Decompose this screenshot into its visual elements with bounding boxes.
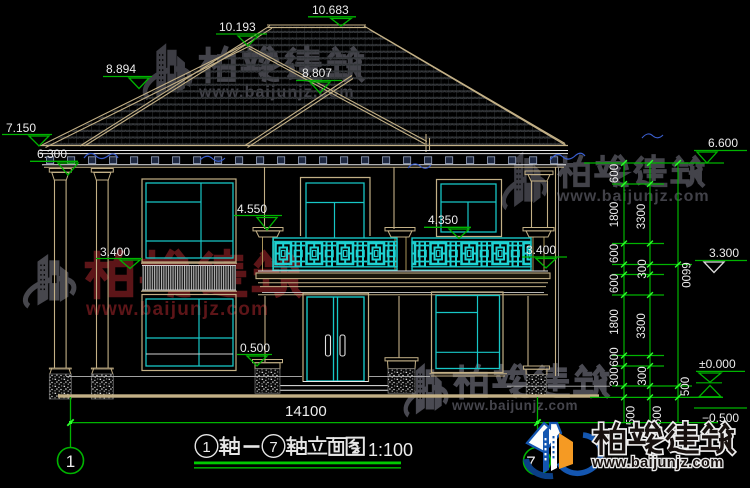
svg-text:1800: 1800	[609, 309, 621, 335]
svg-text:±0.000: ±0.000	[699, 357, 736, 371]
svg-text:600: 600	[609, 244, 621, 263]
svg-text:300: 300	[637, 259, 649, 278]
svg-text:6600: 6600	[679, 262, 691, 288]
svg-text:8.894: 8.894	[106, 62, 136, 76]
svg-text:3300: 3300	[636, 313, 648, 339]
svg-text:500: 500	[680, 377, 692, 396]
svg-text:3300: 3300	[636, 204, 648, 230]
svg-text:6.600: 6.600	[708, 136, 738, 150]
svg-text:www.baijunjz.com: www.baijunjz.com	[85, 299, 269, 320]
svg-text:1: 1	[66, 452, 75, 471]
svg-text:1:100: 1:100	[368, 440, 413, 460]
svg-text:3.300: 3.300	[709, 246, 739, 260]
svg-text:10.683: 10.683	[312, 3, 349, 17]
svg-text:www.baijunjz.com: www.baijunjz.com	[556, 188, 710, 205]
svg-text:4.350: 4.350	[428, 213, 458, 227]
svg-text:1800: 1800	[609, 202, 621, 228]
svg-text:7: 7	[269, 439, 277, 456]
svg-text:14100: 14100	[285, 403, 327, 420]
svg-text:4.550: 4.550	[237, 202, 267, 216]
svg-text:8.807: 8.807	[302, 66, 332, 80]
svg-text:3.400: 3.400	[526, 243, 556, 257]
svg-text:0.500: 0.500	[240, 341, 270, 355]
svg-text:3.400: 3.400	[100, 245, 130, 259]
svg-text:www.baijunjz.com: www.baijunjz.com	[591, 455, 724, 471]
svg-text:300: 300	[609, 367, 621, 386]
svg-text:300: 300	[637, 366, 649, 385]
svg-text:600: 600	[609, 274, 621, 293]
svg-text:6.300: 6.300	[37, 147, 67, 161]
svg-text:www.baijunjz.com: www.baijunjz.com	[451, 398, 578, 413]
svg-text:7.150: 7.150	[6, 121, 36, 135]
svg-text:600: 600	[609, 164, 621, 183]
svg-text:10.193: 10.193	[219, 20, 256, 34]
svg-text:600: 600	[609, 347, 621, 366]
svg-text:1: 1	[202, 439, 210, 456]
